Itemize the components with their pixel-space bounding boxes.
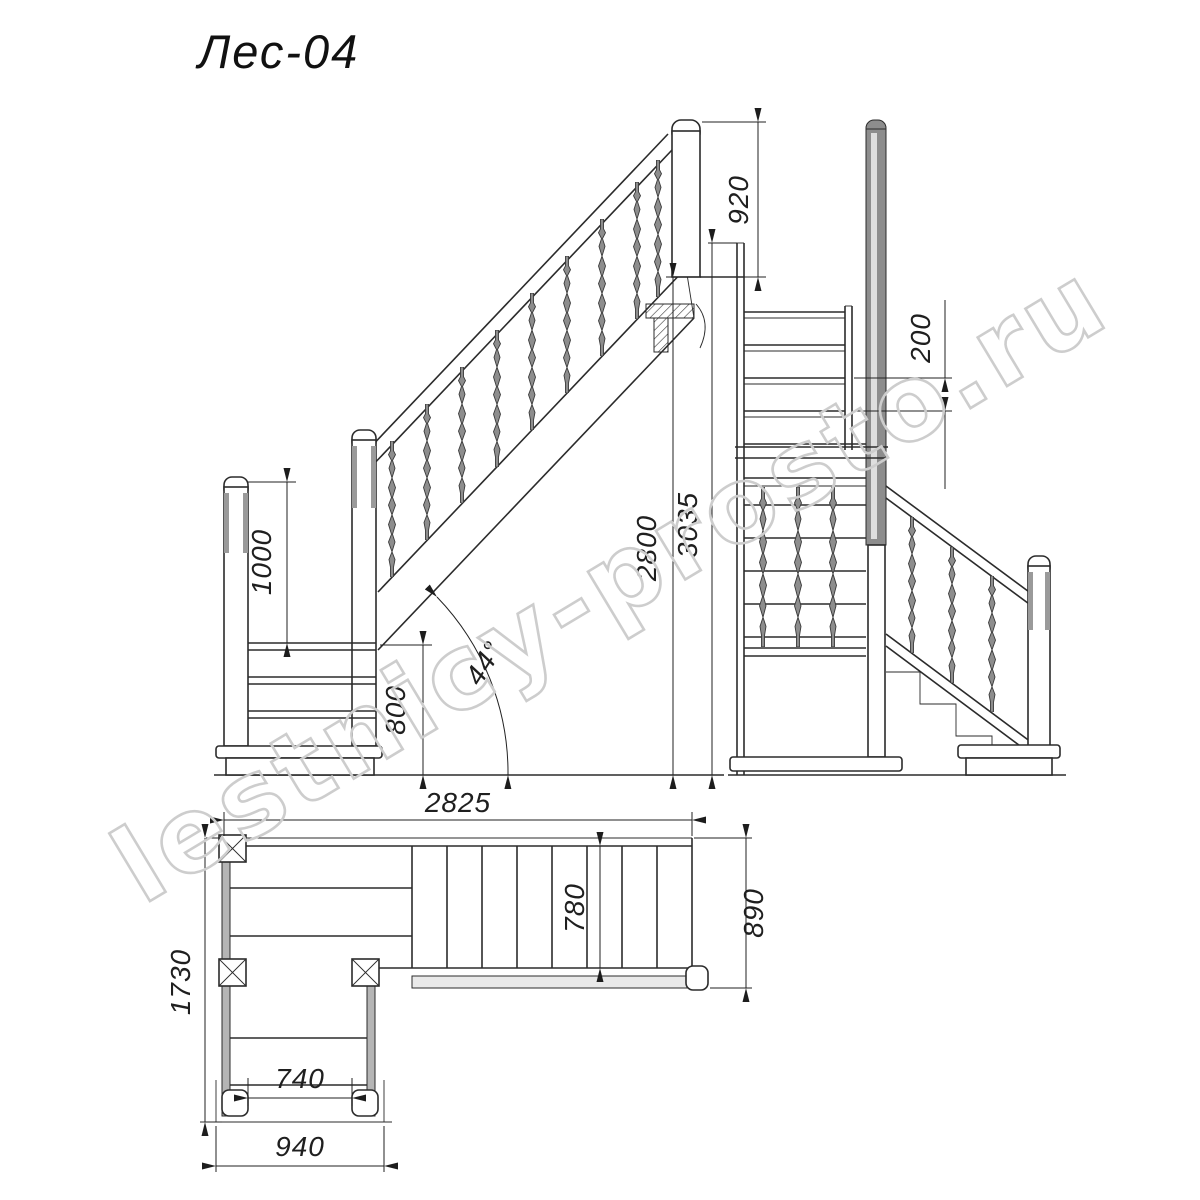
top-newel-post <box>672 120 700 277</box>
dim-tread-width: 780 <box>559 846 600 968</box>
left-landing-post <box>224 477 248 746</box>
svg-text:780: 780 <box>559 883 590 933</box>
svg-text:940: 940 <box>275 1131 325 1162</box>
dim-upper-flight-outer-width: 890 <box>694 838 769 988</box>
tread-section-detail <box>646 304 705 352</box>
svg-text:740: 740 <box>275 1063 325 1094</box>
svg-text:2825: 2825 <box>424 787 491 818</box>
stair-technical-drawing: Лес-04 <box>0 0 1200 1200</box>
drawing-sheet: Лес-04 <box>0 0 1200 1200</box>
drawing-title: Лес-04 <box>195 25 359 78</box>
svg-text:920: 920 <box>723 175 754 225</box>
plan-upper-flight <box>375 846 708 990</box>
svg-text:890: 890 <box>738 888 769 938</box>
plan-rail-end-cap <box>686 966 708 990</box>
end-newel-post <box>1028 556 1050 748</box>
plan-handrail <box>412 976 692 988</box>
dim-lower-flight-outer-width: 940 <box>216 1126 384 1172</box>
svg-text:1730: 1730 <box>165 949 196 1015</box>
dim-landing-rail-height: 1000 <box>246 482 296 643</box>
handrail <box>360 134 672 470</box>
lower-flight-railing <box>886 486 1060 775</box>
svg-text:1000: 1000 <box>246 529 277 595</box>
